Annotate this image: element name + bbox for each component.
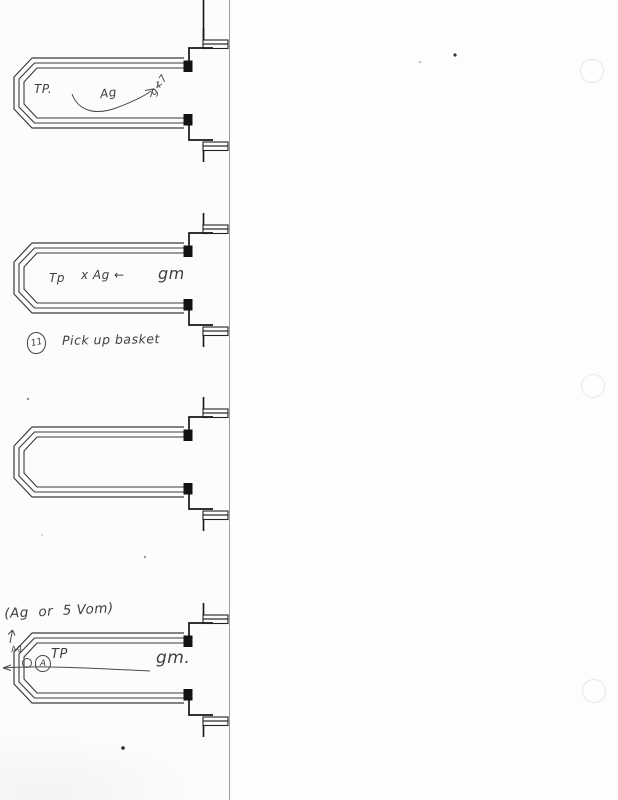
probe-diagram-1 — [14, 0, 228, 162]
d2-label-gm: gm — [158, 266, 185, 282]
d1-label-ag: Ag — [99, 86, 117, 100]
scan-speck — [27, 398, 29, 400]
scanned-sketch-page: TP. Ag g≮7 Tp x Ag ← gm 11 Pick up baske… — [0, 0, 618, 800]
page-fold-line — [229, 0, 230, 800]
probe-diagram-3 — [14, 397, 228, 531]
note-number-circle: 11 — [27, 332, 46, 354]
scan-speck — [121, 746, 125, 750]
d4-label-gm: gm. — [156, 650, 190, 667]
note-text: Pick up basket — [62, 333, 160, 347]
hole-punch — [581, 374, 605, 398]
scan-speck — [41, 534, 43, 536]
scan-speck — [453, 53, 456, 56]
d2-label-tp: Tp — [49, 272, 65, 284]
hole-punch — [582, 679, 606, 703]
d1-label-tp: TP. — [34, 83, 52, 95]
arrow-up-icon — [8, 630, 15, 643]
line-art-canvas — [0, 0, 618, 800]
d4-circled-letter: A — [40, 659, 46, 669]
note-number: 11 — [30, 337, 43, 349]
scan-speck — [144, 556, 146, 558]
d4-label-tp: TP — [51, 648, 68, 661]
d4-circled-letter-circle: A — [35, 655, 51, 672]
d2-label-ag: x Ag ← — [81, 269, 125, 281]
scan-speck — [419, 61, 421, 63]
hole-punch — [580, 59, 604, 83]
